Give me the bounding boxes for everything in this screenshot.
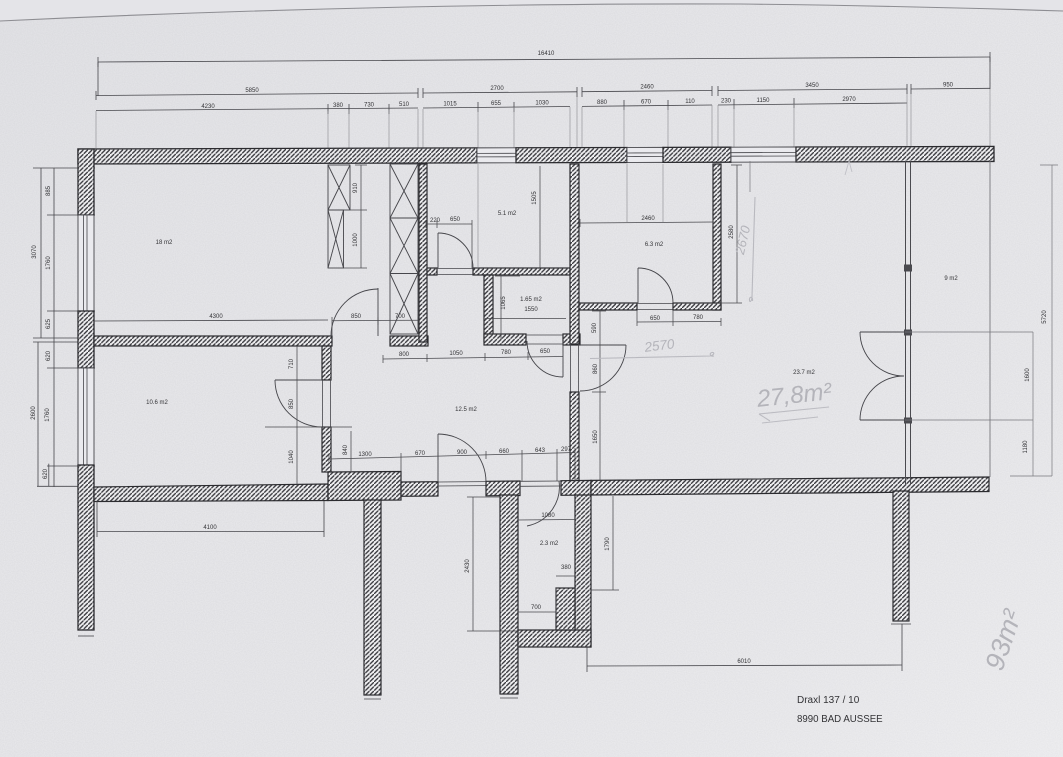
svg-text:12.5 m2: 12.5 m2 [455, 407, 477, 413]
svg-text:1150: 1150 [757, 98, 771, 104]
svg-text:655: 655 [491, 101, 502, 107]
svg-text:18 m2: 18 m2 [156, 240, 173, 246]
svg-text:650: 650 [540, 349, 551, 355]
svg-text:840: 840 [343, 444, 349, 455]
svg-text:1040: 1040 [289, 450, 295, 464]
svg-text:2600: 2600 [31, 406, 37, 420]
svg-text:1065: 1065 [501, 296, 507, 310]
svg-text:780: 780 [693, 315, 704, 321]
svg-text:910: 910 [353, 182, 359, 193]
svg-text:885: 885 [46, 185, 52, 196]
svg-text:880: 880 [597, 100, 608, 106]
svg-text:4230: 4230 [201, 104, 215, 110]
svg-text:850: 850 [351, 314, 362, 320]
svg-text:5.1 m2: 5.1 m2 [498, 211, 517, 217]
svg-text:2460: 2460 [640, 85, 654, 91]
svg-text:23.7 m2: 23.7 m2 [793, 370, 815, 376]
svg-text:2460: 2460 [641, 216, 655, 222]
svg-text:650: 650 [450, 217, 461, 223]
svg-text:860: 860 [593, 363, 599, 374]
svg-text:220: 220 [430, 218, 441, 224]
svg-text:1505: 1505 [532, 191, 538, 205]
svg-text:1030: 1030 [535, 101, 549, 107]
svg-text:2430: 2430 [465, 559, 471, 573]
svg-text:850: 850 [289, 398, 295, 409]
svg-text:5850: 5850 [245, 88, 259, 94]
svg-text:3070: 3070 [32, 245, 38, 259]
svg-text:1000: 1000 [353, 233, 359, 247]
svg-text:380: 380 [561, 565, 572, 571]
svg-text:2700: 2700 [490, 86, 504, 92]
svg-text:1760: 1760 [45, 408, 51, 422]
svg-text:800: 800 [399, 352, 410, 358]
svg-text:3450: 3450 [805, 83, 819, 89]
svg-text:650: 650 [650, 316, 661, 322]
svg-text:4300: 4300 [209, 314, 223, 320]
svg-text:1015: 1015 [443, 102, 457, 108]
svg-text:10.6 m2: 10.6 m2 [146, 400, 168, 406]
svg-text:6010: 6010 [737, 659, 751, 665]
svg-text:297: 297 [561, 447, 572, 453]
svg-text:1600: 1600 [1025, 368, 1031, 382]
svg-text:625: 625 [46, 318, 52, 329]
svg-text:110: 110 [685, 99, 695, 105]
svg-text:1050: 1050 [449, 351, 463, 357]
svg-text:660: 660 [499, 449, 510, 455]
svg-text:1180: 1180 [1023, 440, 1029, 454]
svg-text:730: 730 [364, 103, 375, 109]
svg-text:8990 BAD AUSSEE: 8990 BAD AUSSEE [797, 714, 883, 725]
svg-text:9 m2: 9 m2 [944, 276, 958, 282]
svg-text:950: 950 [943, 83, 954, 89]
svg-text:5720: 5720 [1042, 310, 1048, 324]
svg-text:16410: 16410 [538, 51, 555, 57]
svg-text:Draxl 137 / 10: Draxl 137 / 10 [797, 695, 860, 706]
svg-text:620: 620 [43, 468, 49, 479]
svg-text:700: 700 [531, 605, 542, 611]
svg-text:1550: 1550 [524, 307, 538, 313]
svg-text:1760: 1760 [46, 256, 52, 270]
svg-text:643: 643 [535, 448, 546, 454]
svg-text:1080: 1080 [541, 513, 555, 519]
svg-text:230: 230 [721, 99, 732, 105]
svg-text:1300: 1300 [358, 452, 372, 458]
svg-text:780: 780 [501, 350, 512, 356]
svg-text:710: 710 [289, 358, 295, 369]
svg-text:590: 590 [592, 322, 598, 333]
svg-text:380: 380 [333, 103, 344, 109]
svg-text:1790: 1790 [605, 537, 611, 551]
svg-text:510: 510 [399, 102, 410, 108]
svg-text:700: 700 [395, 314, 406, 320]
svg-text:2970: 2970 [842, 97, 856, 103]
svg-text:6.3 m2: 6.3 m2 [645, 242, 664, 248]
svg-text:620: 620 [46, 350, 52, 361]
svg-text:1.65 m2: 1.65 m2 [520, 297, 542, 303]
svg-text:900: 900 [457, 450, 468, 456]
svg-text:670: 670 [415, 451, 426, 457]
svg-text:4100: 4100 [203, 525, 217, 531]
svg-text:670: 670 [641, 100, 652, 106]
svg-text:2580: 2580 [729, 225, 735, 239]
svg-text:1650: 1650 [593, 430, 599, 444]
svg-text:2.3 m2: 2.3 m2 [540, 541, 559, 547]
